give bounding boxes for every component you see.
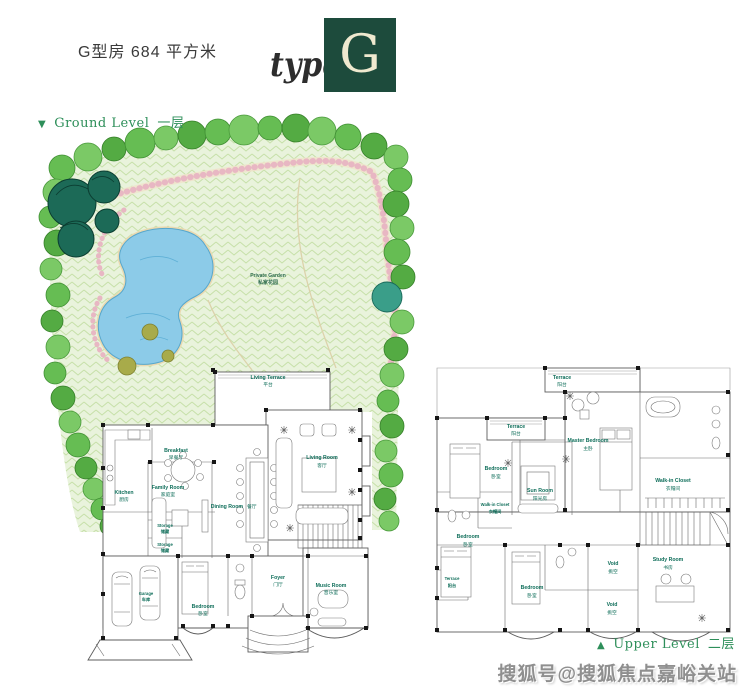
room-label-cn: 储藏 (160, 547, 170, 554)
upper-level-text-cn: 二层 (708, 633, 735, 652)
room-label-cn: 餐厅 (247, 503, 257, 510)
type-letter: G (339, 29, 381, 81)
bed-icon (441, 547, 471, 597)
upper-floor-plan: Terrace 阳台 Master Bedroom 主卧 Walk-in Clo… (435, 366, 730, 641)
room-label-cn: 储藏 (160, 528, 170, 535)
tree-icon (41, 310, 63, 332)
tree-icon (384, 145, 408, 169)
bed-icon (450, 444, 480, 498)
room-label: Walk-in Closet (481, 502, 510, 507)
tree-icon (51, 386, 75, 410)
tree-icon (229, 115, 259, 145)
room-label: Void (607, 602, 618, 608)
tree-icon (361, 133, 387, 159)
room-label-cn: 早餐厅 (169, 454, 184, 461)
room-label: Kitchen (114, 490, 133, 496)
music-bay (306, 628, 364, 638)
dark-tree-icon (88, 171, 120, 203)
ground-level-text-cn: 一层 (157, 112, 184, 131)
tree-icon (375, 440, 397, 462)
tree-icon (46, 335, 70, 359)
bay-window (362, 486, 370, 516)
room-label-cn: 挑空 (607, 609, 617, 616)
tree-icon (379, 463, 403, 487)
tree-icon (102, 137, 126, 161)
tree-icon (308, 117, 336, 145)
bedroom-bay (183, 628, 213, 634)
tree-icon (74, 143, 102, 171)
tree-icon (380, 414, 404, 438)
tree-icon (66, 433, 90, 457)
room-label-cn: 门厅 (273, 581, 283, 588)
tree-icon (377, 390, 399, 412)
tree-icon (49, 155, 75, 181)
room-label-cn: 家庭室 (161, 491, 176, 498)
room-label: Bedroom (521, 585, 544, 591)
page-title: G型房 684 平方米 (78, 38, 217, 62)
room-label: Void (608, 561, 619, 567)
tree-icon (83, 478, 105, 500)
ground-level-label: ▼ Ground Level 一层 (38, 112, 184, 131)
room-label: Music Room (316, 583, 347, 589)
floor-plan-canvas: Private Garden 私家花园 (0, 0, 740, 690)
tree-icon (384, 239, 410, 265)
tree-icon (40, 258, 62, 280)
tree-icon (205, 119, 231, 145)
room-label-cn: 书房 (663, 564, 673, 571)
room-label: Bedroom (192, 604, 215, 610)
room-label-cn: 阳台 (557, 381, 567, 388)
room-label: Garage (139, 591, 154, 596)
tree-icon (125, 128, 155, 158)
room-label-cn: 衣帽间 (489, 508, 502, 515)
room-label-cn: 阳台 (448, 582, 456, 589)
bay-window (362, 436, 370, 466)
room-label-cn: 阳光房 (533, 495, 548, 502)
room-label: Storage (157, 542, 173, 547)
room-label-cn: 音乐室 (324, 589, 339, 596)
room-label-cn: 卧室 (491, 473, 501, 480)
bush-icon (162, 350, 174, 362)
bedroom-bay (508, 632, 554, 639)
upper-level-label: ▲ Upper Level 二层 (597, 633, 735, 652)
room-label: Bedroom (485, 466, 508, 472)
tree-icon (388, 168, 412, 192)
room-label-cn: 挑空 (608, 568, 618, 575)
room-label: Terrace (445, 576, 460, 581)
room-label: Family Room (152, 485, 185, 491)
tree-icon (374, 488, 396, 510)
floor-plan-page: Private Garden 私家花园 (0, 0, 740, 690)
room-label-cn: 主卧 (583, 445, 593, 452)
room-label: Dining Room (211, 504, 244, 510)
room-label-cn: 车库 (142, 596, 151, 603)
room-label-cn: 衣帽间 (666, 485, 681, 492)
room-label-cn: 厨房 (119, 496, 129, 503)
tree-icon (335, 124, 361, 150)
bush-icon (142, 324, 158, 340)
room-label: Living Room (306, 455, 338, 461)
room-label: Breakfast (164, 448, 188, 454)
upper-level-text: Upper Level (613, 637, 700, 652)
tree-icon (380, 363, 404, 387)
tree-icon (258, 116, 282, 140)
tree-icon (379, 511, 399, 531)
room-label: Living Terrace (250, 375, 285, 381)
tree-icon (390, 310, 414, 334)
lower-band-upper (437, 512, 730, 632)
room-label: Terrace (507, 424, 525, 430)
dark-tree-icon (95, 209, 119, 233)
tree-icon (390, 216, 414, 240)
room-label: Storage (157, 523, 173, 528)
room-label-cn: 卧室 (198, 610, 208, 617)
triangle-up-icon: ▲ (597, 640, 605, 651)
tree-icon (46, 283, 70, 307)
tree-icon (372, 282, 402, 312)
tree-icon (44, 362, 66, 384)
room-label: Sun Room (527, 488, 553, 494)
tree-icon (75, 457, 97, 479)
driveway (88, 640, 192, 660)
tree-icon (383, 191, 409, 217)
room-label-cn: 卧室 (527, 592, 537, 599)
tree-icon (59, 411, 81, 433)
room-label-cn: 平台 (263, 381, 273, 388)
room-label: Terrace (553, 375, 571, 381)
room-label: Master Bedroom (568, 438, 609, 444)
entry-porch (248, 616, 308, 652)
tree-icon (282, 114, 310, 142)
room-label: Study Room (653, 557, 684, 563)
room-label-cn: 私家花园 (257, 279, 278, 286)
bush-icon (118, 357, 136, 375)
type-badge: G (324, 18, 396, 92)
watermark: 搜狐号@搜狐焦点嘉峪关站 (497, 659, 737, 686)
room-label-cn: 客厅 (317, 462, 327, 469)
bath-icon (235, 564, 245, 599)
triangle-down-icon: ▼ (38, 119, 46, 130)
room-label-cn: 阳台 (511, 430, 521, 437)
tree-icon (384, 337, 408, 361)
room-label-cn: 卧室 (463, 541, 473, 548)
room-label: Foyer (271, 575, 285, 581)
room-label: Bedroom (457, 534, 480, 540)
ground-level-text: Ground Level (54, 116, 149, 131)
room-label: Private Garden (250, 273, 286, 279)
room-label: Walk-in Closet (655, 478, 691, 484)
